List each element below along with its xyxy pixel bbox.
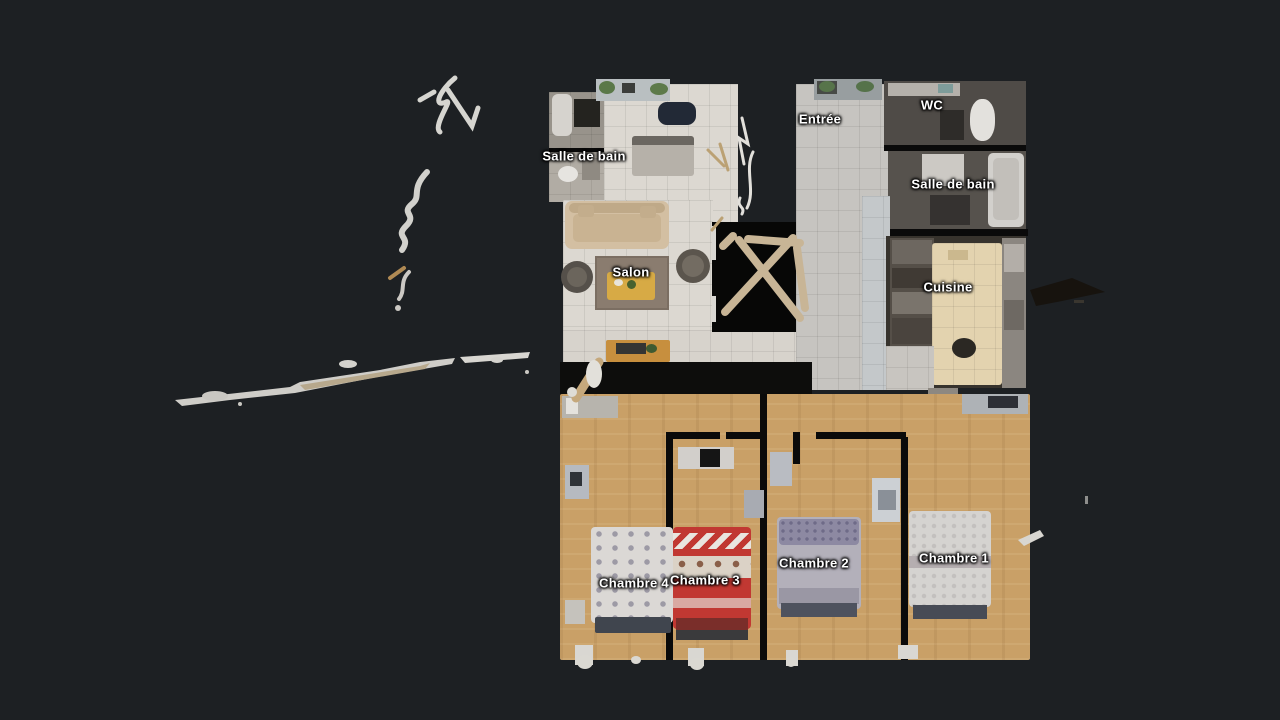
kitchen-appliance [892, 292, 932, 314]
label-salle-de-bain-1[interactable]: Salle de bain [542, 149, 625, 164]
kitchen-appliance [1004, 244, 1024, 272]
squiggle-mid [402, 172, 427, 250]
bed-chambre-3-zigzag-band [673, 533, 751, 549]
bed-chambre-2-foot [781, 603, 857, 617]
wall-stub [793, 432, 800, 464]
nightstand-item [570, 472, 582, 486]
console-items [616, 343, 646, 354]
label-chambre-2[interactable]: Chambre 2 [779, 556, 849, 571]
kitchen-bottom-tiles [886, 346, 934, 390]
radiator [786, 650, 798, 666]
bed-chambre-4-foot [595, 617, 671, 633]
label-chambre-3[interactable]: Chambre 3 [670, 573, 740, 588]
floor-gap [560, 362, 812, 396]
armchair-cushion [682, 255, 704, 277]
label-salon[interactable]: Salon [613, 265, 650, 280]
sofa-pillow [578, 205, 594, 217]
squiggle-top [420, 78, 478, 132]
bath-mat [930, 195, 970, 225]
dresser [770, 452, 792, 486]
radiator [898, 645, 918, 659]
label-wc[interactable]: WC [921, 98, 943, 113]
bathtub-basin [993, 158, 1019, 220]
wall-bedrooms-h [816, 432, 906, 439]
bay-frame [712, 226, 716, 260]
statue-artifact-base [566, 398, 578, 414]
bed-chambre-2-pillow [779, 519, 859, 545]
ledge-item [988, 396, 1018, 408]
shower-column [552, 94, 572, 136]
dark-sliver [1030, 278, 1105, 306]
wall-bedrooms-h [666, 432, 720, 439]
kitchen-appliance [892, 240, 932, 264]
label-salle-de-bain-2[interactable]: Salle de bain [911, 177, 994, 192]
plant-pot [622, 83, 635, 93]
radiator [688, 648, 704, 666]
wall-ch3-ch2 [760, 394, 767, 660]
bay-frame [712, 296, 716, 322]
plant [856, 81, 874, 92]
sofa-seat [573, 214, 661, 242]
wall-bathroom-right [886, 229, 1028, 236]
console-plant [646, 344, 657, 353]
desk [744, 490, 764, 518]
plant [650, 83, 668, 95]
squiggle-small [390, 268, 409, 311]
wc-mat [940, 110, 964, 140]
wall-ch2-ch1 [901, 437, 908, 660]
bed-chambre-3-frame [676, 630, 748, 640]
kitchen-island [932, 243, 1002, 385]
label-chambre-1[interactable]: Chambre 1 [919, 551, 989, 566]
wardrobe-opening [700, 449, 720, 467]
table-plant [627, 280, 636, 289]
sink-basin [558, 166, 578, 182]
armchair-cushion [567, 267, 587, 287]
toilet [970, 99, 995, 141]
island-stool [952, 338, 976, 358]
streak-long [175, 352, 530, 406]
shelf [565, 600, 585, 624]
floorplan-canvas[interactable]: Salle de bain Entrée WC Salle de bain Sa… [0, 0, 1280, 720]
bed-chambre-3-stripe [673, 598, 751, 608]
island-board [948, 250, 968, 260]
bed-chambre-2-throw [779, 588, 859, 604]
label-chambre-4[interactable]: Chambre 4 [599, 576, 669, 591]
table-dish [614, 279, 623, 286]
radiator [575, 645, 593, 665]
wc-shelf-item [938, 84, 953, 93]
label-entree[interactable]: Entrée [799, 112, 841, 127]
beanbag [658, 102, 696, 125]
washing-machine [574, 99, 600, 127]
kitchen-appliance [892, 318, 932, 344]
plant [599, 81, 615, 94]
label-cuisine[interactable]: Cuisine [923, 280, 972, 295]
dining-table-shadow [632, 136, 694, 145]
nightstand-item [878, 490, 896, 510]
bed-chambre-1-foot [913, 605, 987, 619]
plant [819, 81, 835, 92]
squiggle-gap [739, 118, 753, 214]
sofa-pillow [640, 206, 656, 218]
kitchen-appliance [1004, 300, 1024, 330]
